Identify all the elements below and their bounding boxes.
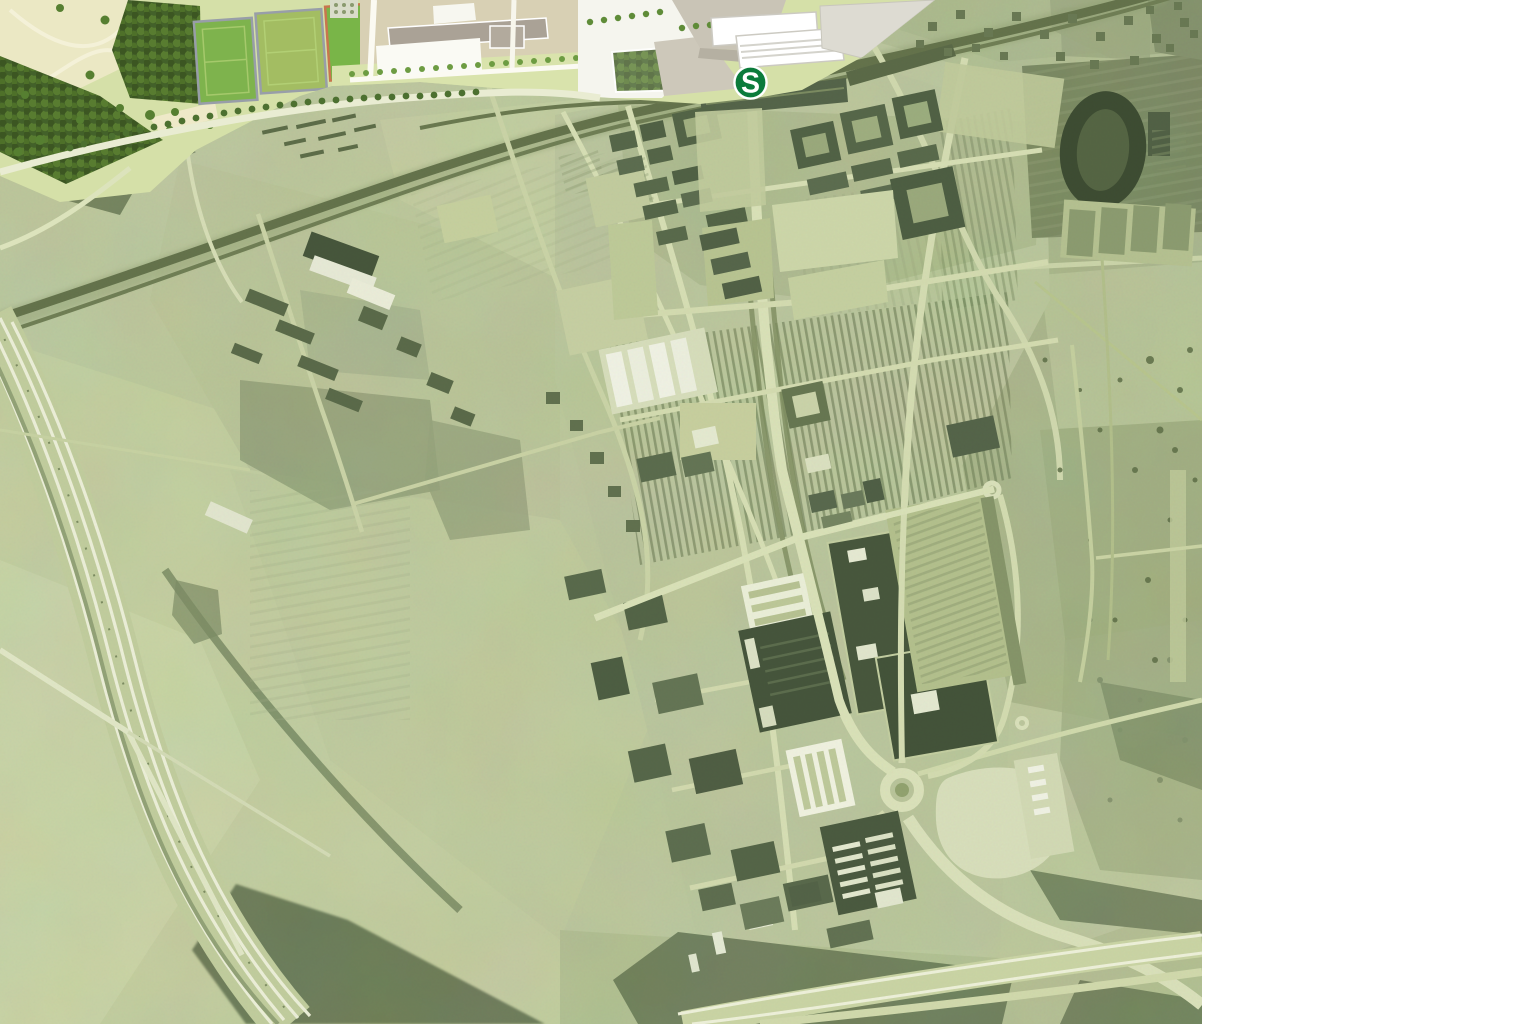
svg-text:S: S	[741, 68, 760, 100]
